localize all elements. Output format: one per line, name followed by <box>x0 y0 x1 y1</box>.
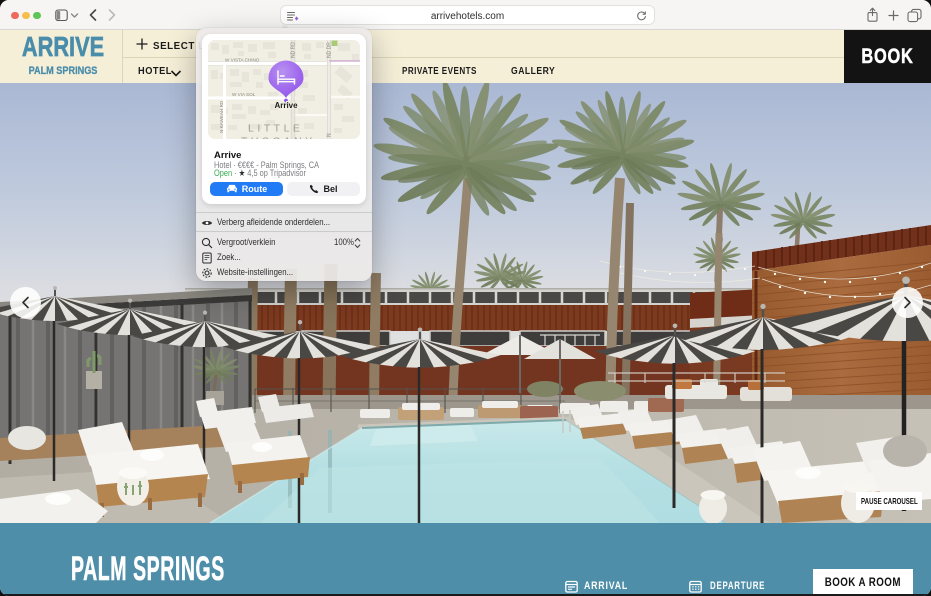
svg-text:Arrive: Arrive <box>274 101 298 110</box>
svg-text:N: N <box>327 133 333 137</box>
svg-text:LITTLE: LITTLE <box>248 123 303 135</box>
svg-text:ND RD: ND RD <box>291 42 297 58</box>
svg-text:ND DR: ND DR <box>327 42 333 58</box>
svg-text:TUSCANY: TUSCANY <box>241 136 316 140</box>
svg-text:N KAWEAH RD: N KAWEAH RD <box>219 100 224 133</box>
svg-text:W VIA SOL: W VIA SOL <box>232 92 256 97</box>
svg-text:W VISTA CHINO: W VISTA CHINO <box>225 57 260 62</box>
